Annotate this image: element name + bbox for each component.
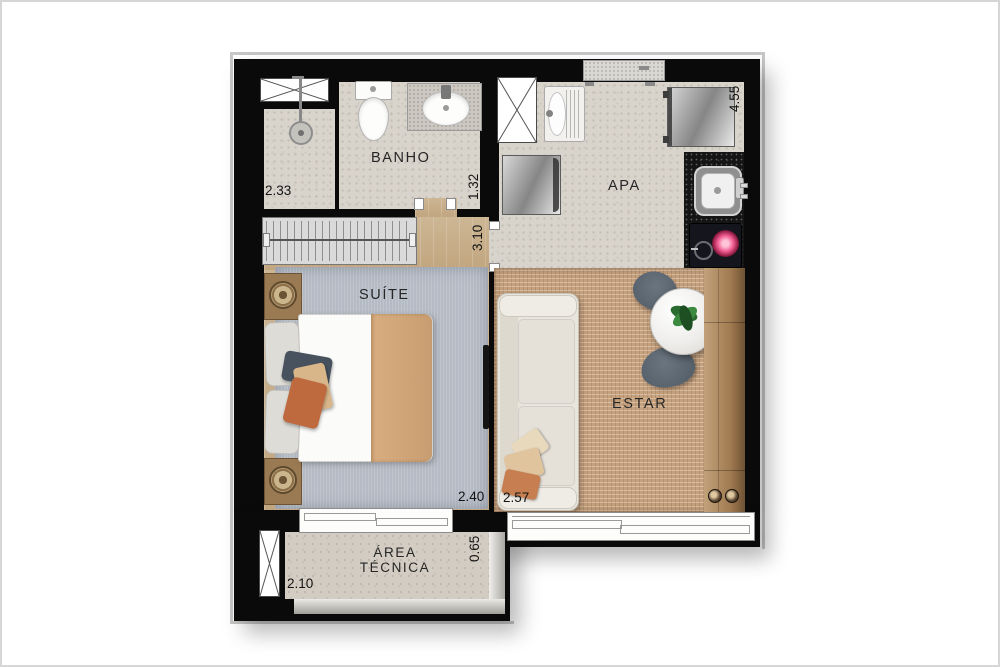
toilet-button-icon: [370, 86, 376, 92]
shower-arm-icon: [292, 76, 304, 79]
sideboard-knob-icon: [725, 489, 739, 503]
shower-drain-icon: [298, 130, 304, 136]
sofa-armrest: [499, 295, 577, 317]
door-jamb: [414, 198, 424, 210]
nightstand-decor-icon: [269, 466, 297, 494]
area-tecnica-ledge: [294, 599, 505, 614]
refrigerator-handle: [663, 136, 669, 143]
refrigerator-icon: [667, 87, 735, 147]
sideboard-seam: [704, 470, 745, 471]
door-handle-icon: [645, 82, 655, 86]
x-cross-icon: [260, 531, 279, 596]
slab-outline-top: [233, 52, 765, 55]
dim-apa-height: 4.55: [727, 86, 742, 112]
window-panel: [304, 513, 376, 521]
shaft-icon: [260, 78, 329, 102]
cooktop-controls: [691, 248, 698, 250]
dim-banho-depth: 1.32: [466, 174, 481, 200]
room-label-suite: SUÍTE: [359, 287, 410, 303]
dim-area-tecnica-depth: 0.65: [467, 536, 482, 562]
floor-plan: BANHO APA SUÍTE ESTAR ÁREA TÉCNICA 2.33 …: [0, 0, 1000, 667]
entry-door-icon: [583, 60, 665, 81]
burner-on-icon: [712, 230, 739, 257]
shaft-icon: [259, 530, 280, 597]
window-panel: [620, 525, 750, 534]
sink-drain-icon: [714, 187, 721, 194]
dim-suite-hall: 3.10: [470, 225, 485, 251]
wardrobe-rod-cap: [263, 233, 270, 247]
faucet-handle: [740, 183, 748, 188]
slab-outline-bottom: [233, 621, 514, 624]
washing-machine-door: [553, 158, 559, 212]
sink-drain-icon: [443, 105, 449, 111]
door-handle-icon: [639, 66, 649, 70]
room-label-banho: BANHO: [371, 150, 431, 166]
room-label-estar: ESTAR: [612, 396, 667, 412]
sideboard-seam: [704, 322, 745, 323]
sideboard-seam: [718, 268, 719, 512]
x-cross-icon: [261, 79, 328, 101]
dim-suite-width: 2.40: [458, 489, 484, 504]
window-track: [512, 516, 750, 517]
tv-icon: [483, 345, 489, 429]
door-jamb: [446, 198, 456, 210]
faucet-handle: [740, 194, 748, 199]
room-label-area-tecnica: ÁREA TÉCNICA: [330, 545, 460, 575]
faucet-icon: [546, 110, 553, 117]
window-panel: [512, 520, 622, 529]
laundry-tank-ribs: [566, 90, 582, 138]
wardrobe-hangers: [266, 221, 413, 261]
room-label-apa: APA: [608, 178, 641, 194]
dim-shower-width: 2.33: [265, 183, 291, 198]
shower-arm-icon: [299, 78, 302, 123]
slab-outline-left: [230, 52, 233, 624]
burner-off-icon: [694, 241, 713, 260]
wardrobe-rod-cap: [409, 233, 416, 247]
room-label-area: ÁREA: [330, 545, 460, 560]
hall-passage-opening: [489, 230, 499, 264]
room-label-tecnica: TÉCNICA: [330, 560, 460, 575]
door-handle-icon: [585, 82, 594, 86]
sideboard-icon: [704, 268, 745, 512]
sideboard-knob-icon: [708, 489, 722, 503]
x-cross-icon: [498, 78, 536, 142]
slab-outline-right: [762, 52, 765, 549]
door-jamb: [489, 221, 500, 230]
faucet-icon: [441, 85, 451, 99]
dim-area-tecnica-width: 2.10: [287, 576, 313, 591]
window-panel: [376, 518, 448, 526]
wardrobe-rod: [266, 239, 413, 241]
sofa-cushion: [518, 319, 575, 404]
refrigerator-handle: [663, 91, 669, 98]
bed-blanket: [371, 314, 432, 462]
shaft-icon: [497, 77, 537, 143]
dim-estar-width: 2.57: [503, 490, 529, 505]
nightstand-decor-icon: [269, 281, 297, 309]
